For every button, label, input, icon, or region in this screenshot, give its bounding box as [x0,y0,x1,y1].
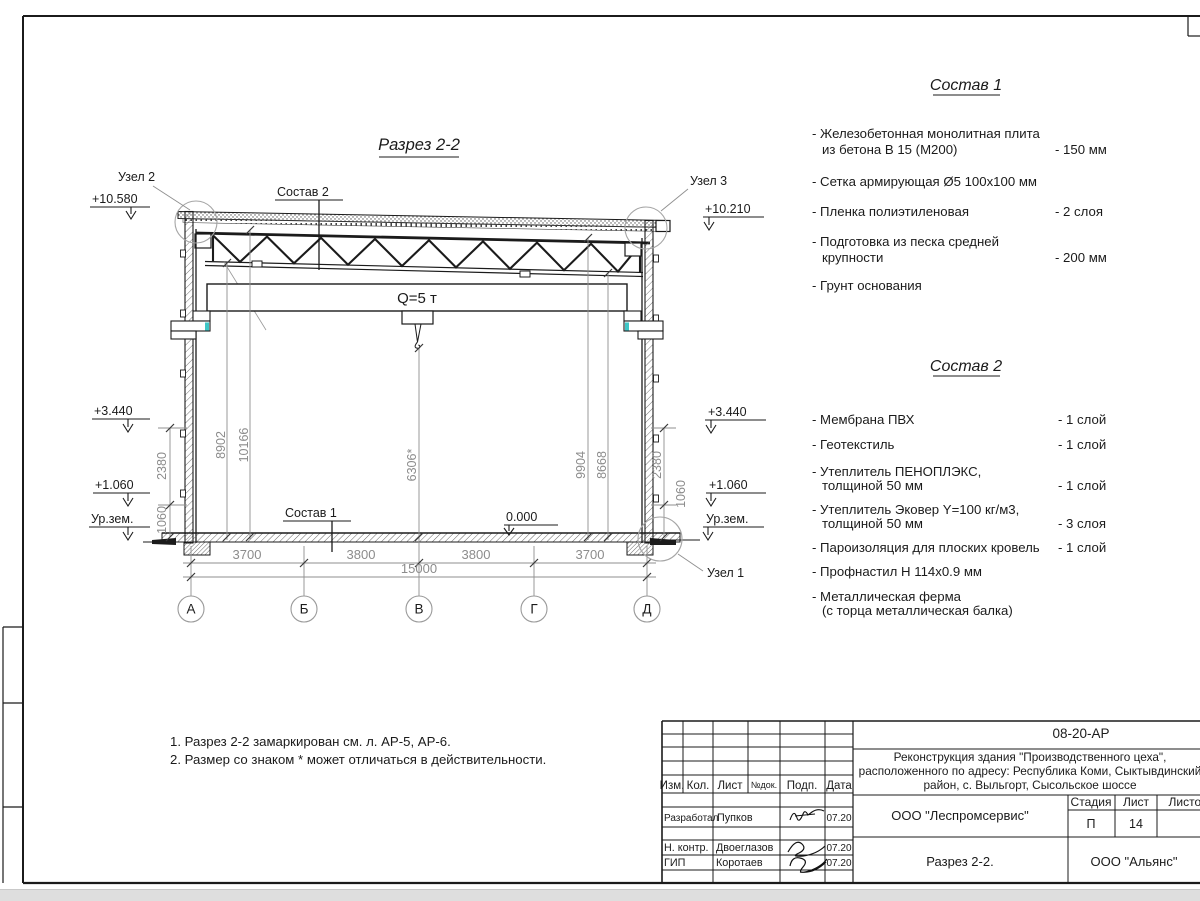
sostav2-item-value: - 1 слой [1058,412,1106,427]
crane-trolley [402,311,433,324]
sostav2-item-value: - 1 слой [1058,437,1106,452]
dim-8668: 8668 [595,451,609,479]
list-header: Лист [1123,795,1150,809]
node3-label: Узел 3 [690,174,727,188]
stage-value: П [1087,817,1096,831]
row2-date: 07.20 [826,843,851,854]
dim-span-4: 3700 [576,547,605,562]
row3-date: 07.20 [826,858,851,869]
sostav2-item: - Мембрана ПВХ [812,412,915,427]
sostav2-item-value: - 1 слой [1058,478,1106,493]
dim-2380-left: 2380 [155,452,169,480]
col-data: Дата [826,780,852,792]
composition-leaders: Состав 2 Состав 1 [275,185,351,552]
elev-zero: 0.000 [504,510,558,535]
sostav1-list: Состав 1 - Железобетонная монолитная пли… [812,77,1107,293]
section-title: Разрез 2-2 [378,136,460,154]
sostav2-item: - Геотекстиль [812,437,895,452]
crane-bridge: Q=5 т [171,284,663,348]
project-name-line3: район, с. Выльгорт, Сысольское шоссе [923,778,1137,792]
elev-right-low: +1.060 [706,478,766,506]
sostav1-item-value: - 200 мм [1055,250,1107,265]
svg-text:+10.580: +10.580 [92,192,138,206]
sostav1-item-cont: из бетона В 15 (М200) [822,142,957,157]
span-dimensions: 3700 3800 3800 3700 15000 [233,547,605,576]
row2-name: Двоеглазов [716,842,774,854]
axis-d-label: Д [642,602,651,617]
elev-right-top: +10.210 [703,202,764,230]
left-footing [184,542,210,555]
signature-1 [790,810,824,821]
elev-ground-right: Ур.зем. [703,512,764,540]
left-apron [152,538,176,545]
sostav2-item-value: - 1 слой [1058,540,1106,555]
note-line-1: 1. Разрез 2-2 замаркирован см. л. АР-5, … [170,734,451,749]
dim-span-1: 3700 [233,547,262,562]
sostav2-item-cont: толщиной 50 мм [822,478,923,493]
right-wall [645,221,653,544]
ground-label-right: Ур.зем. [706,512,748,526]
col-podp: Подп. [787,780,818,792]
axis-b-label: Б [300,602,309,617]
col-kol: Кол. [687,780,710,792]
sostav2-item-value: - 3 слоя [1058,516,1106,531]
svg-text:+1.060: +1.060 [95,478,134,492]
dim-1060-right: 1060 [674,480,688,508]
axis-v-label: В [414,602,423,617]
roof-right-end-cap [656,221,670,232]
leader-sostav1-label: Состав 1 [285,506,337,520]
axis-markers: А Б В Г Д [178,596,660,622]
svg-text:+1.060: +1.060 [709,478,748,492]
row3-name: Коротаев [716,857,763,869]
dim-8902: 8902 [214,431,228,459]
doc-number: 08-20-АР [1052,726,1109,741]
row1-date: 07.20 [826,813,851,824]
dim-span-3: 3800 [462,547,491,562]
col-ndok: №док. [751,780,777,790]
design-org: ООО "Леспромсервис" [891,808,1029,823]
dim-2380-right: 2380 [650,451,664,479]
sostav2-item: - Профнастил Н 114х0.9 мм [812,564,982,579]
signature-2 [788,842,827,872]
elev-left-low: +1.060 [93,478,150,506]
dim-span-2: 3800 [347,547,376,562]
truss-left-support [195,234,211,248]
sostav2-item: - Утеплитель Эковер Y=100 кг/м3, [812,502,1019,517]
dim-total-span: 15000 [401,561,437,576]
col-list: Лист [718,780,744,792]
row1-name: Пупков [717,812,753,824]
svg-text:+3.440: +3.440 [708,405,747,419]
stage-header: Стадия [1071,795,1112,809]
axis-g-label: Г [530,602,538,617]
sostav2-item: - Металлическая ферма [812,589,962,604]
dim-9904: 9904 [574,451,588,479]
sostav1-item-cont: крупности [822,250,883,265]
elev-right-mid: +3.440 [705,405,766,433]
elev-ground-left: Ур.зем. [89,512,150,540]
sostav2-item: - Пароизоляция для плоских кровель [812,540,1040,555]
sostav2-item-cont: (с торца металлическая балка) [822,603,1013,618]
sostav2-item-cont: толщиной 50 мм [822,516,923,531]
sheet-name: Разрез 2-2. [926,854,993,869]
svg-text:+3.440: +3.440 [94,404,133,418]
signatures [788,810,827,873]
left-margin-boxes [3,627,23,883]
sostav1-item: - Подготовка из песка средней [812,234,999,249]
svg-text:0.000: 0.000 [506,510,537,524]
sostav1-item: - Сетка армирующая Ø5 100х100 мм [812,174,1037,189]
node2-label: Узел 2 [118,170,155,184]
row2-role: Н. контр. [664,842,709,854]
sostav1-heading: Состав 1 [930,77,1002,94]
crane-hook [415,324,421,348]
row3-role: ГИП [664,857,685,869]
project-name-line1: Реконструкция здания "Производственного … [894,750,1167,764]
paper-bottom-edge [0,889,1200,901]
crane-capacity-label: Q=5 т [397,290,437,307]
ground-label-left: Ур.зем. [91,512,133,526]
dimension-ticks [166,226,668,581]
dim-1060-left: 1060 [155,506,169,534]
svg-text:+10.210: +10.210 [705,202,751,216]
dim-6306: 6306* [405,449,419,482]
sostav1-item: - Грунт основания [812,278,922,293]
sostav2-item: - Утеплитель ПЕНОПЛЭКС, [812,464,981,479]
note-line-2: 2. Размер со знаком * может отличаться в… [170,752,546,767]
dim-10166: 10166 [237,428,251,463]
customer-org: ООО "Альянс" [1091,854,1178,869]
sostav2-heading: Состав 2 [930,358,1002,375]
node1-label: Узел 1 [707,566,744,580]
leader-sostav2-label: Состав 2 [277,185,329,199]
project-name-line2: расположенного по адресу: Республика Ком… [859,764,1200,778]
row1-role: Разработал [664,812,719,824]
elev-left-mid: +3.440 [92,404,150,432]
sostav1-item-value: - 2 слоя [1055,204,1103,219]
col-izm: Изм. [660,780,685,792]
elev-left-top: +10.580 [90,192,150,219]
list-value: 14 [1129,817,1143,831]
notes: 1. Разрез 2-2 замаркирован см. л. АР-5, … [170,734,546,767]
sostav1-item: - Пленка полиэтиленовая [812,204,969,219]
sostav1-item: - Железобетонная монолитная плита [812,126,1041,141]
listov-header: Листов [1169,795,1200,809]
sostav1-item-value: - 150 мм [1055,142,1107,157]
axis-a-label: А [186,602,195,617]
drawing-sheet: Разрез 2-2 [0,0,1200,900]
left-wall [185,212,193,544]
sostav2-list: Состав 2 - Мембрана ПВХ - 1 слой - Геоте… [812,358,1106,618]
